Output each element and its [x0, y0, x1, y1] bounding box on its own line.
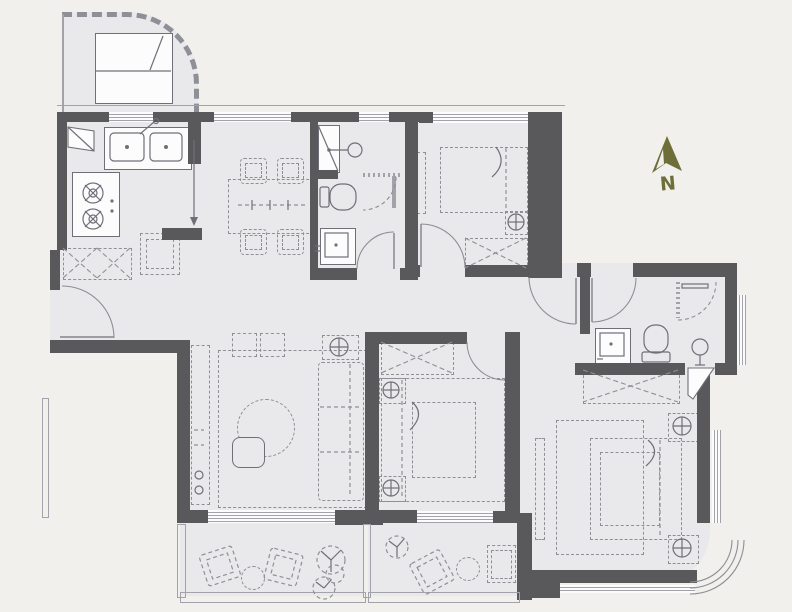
wall-segment [318, 170, 338, 179]
wall-segment [419, 112, 433, 123]
wall-segment [365, 332, 379, 522]
wall-segment [405, 112, 418, 280]
wall-segment [162, 228, 202, 240]
wall-segment [310, 268, 357, 280]
terrace-edge [62, 14, 64, 114]
exterior-window [42, 398, 49, 518]
window [417, 511, 493, 523]
wall-segment [633, 263, 737, 277]
wall-rack [417, 152, 426, 214]
compass-label: N [659, 172, 677, 195]
nightstand [379, 476, 406, 502]
window [433, 112, 528, 123]
wall-segment [697, 373, 710, 523]
dining-chair-seat [245, 235, 262, 250]
balcony-table [241, 566, 265, 590]
wall-segment [177, 353, 190, 513]
wall-segment [465, 265, 528, 277]
window [214, 112, 291, 122]
wall-segment [517, 570, 560, 598]
nightstand [668, 535, 699, 564]
wall-segment [379, 332, 467, 344]
stool [232, 333, 257, 357]
terrace-planter [95, 33, 173, 104]
window-sill-line [57, 105, 565, 106]
bed-2-duvet [412, 402, 476, 478]
bifold-door [318, 125, 340, 173]
balcony-railing [177, 524, 186, 598]
wall-segment [505, 332, 520, 522]
wall-segment [310, 122, 318, 280]
wall-segment [715, 363, 737, 375]
wardrobe-master [583, 370, 680, 404]
balcony-railing [368, 592, 520, 603]
balcony-railing [180, 592, 366, 603]
wall-segment [410, 265, 420, 277]
balcony-lounger-seat [491, 550, 512, 579]
entry-cabinet [63, 248, 132, 280]
wall-segment [528, 112, 562, 278]
tv-console [191, 345, 210, 505]
wall-segment [575, 363, 685, 375]
wall-segment [50, 250, 60, 290]
wall-segment [50, 340, 190, 353]
shower-glass-panel [392, 176, 396, 208]
floor-plan: N [0, 0, 792, 612]
wall-segment [177, 510, 208, 523]
floor-balcony-1 [180, 522, 363, 596]
bathroom-vanity [320, 228, 356, 265]
ensuite-vanity [595, 328, 631, 364]
balcony-table [456, 557, 480, 581]
dining-chair-seat [282, 235, 299, 250]
balcony-divider [363, 524, 371, 598]
floor-entry-door [50, 288, 64, 340]
sofa [318, 362, 364, 501]
dining-table [228, 179, 314, 234]
dining-chair-seat [282, 163, 299, 178]
wall-segment [153, 112, 214, 122]
fridge-inner [146, 239, 174, 269]
nightstand [668, 413, 699, 442]
wardrobe-bedroom-2 [381, 342, 454, 375]
window [712, 430, 721, 523]
side-table [322, 335, 359, 360]
curtain [535, 438, 545, 540]
wall-segment [725, 277, 737, 375]
wall-segment [577, 263, 591, 277]
wall-segment [580, 277, 590, 334]
window [555, 585, 695, 593]
window [208, 510, 335, 523]
wall-segment [188, 122, 201, 164]
window [359, 112, 389, 122]
stove [72, 172, 120, 237]
nightstand [379, 378, 406, 404]
window [109, 112, 153, 122]
pouf [232, 437, 265, 468]
wall-segment [291, 112, 359, 122]
wall-segment [553, 570, 697, 583]
nightstand [505, 211, 528, 235]
kitchen-sink-counter [104, 127, 192, 170]
wall-segment [57, 112, 67, 250]
window [737, 295, 746, 365]
north-arrow-icon [652, 136, 682, 173]
stool [260, 333, 285, 357]
bed-1 [440, 147, 528, 213]
dining-chair-seat [245, 163, 262, 178]
master-bed-duvet [600, 452, 660, 526]
